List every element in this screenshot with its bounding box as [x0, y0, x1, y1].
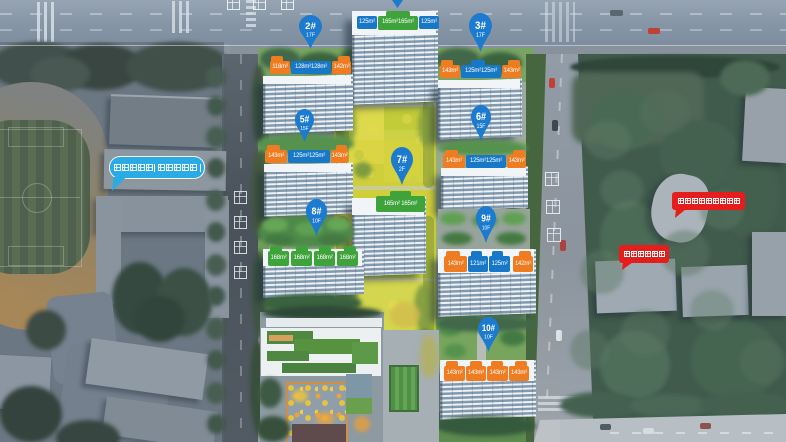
- svg-text:6#: 6#: [476, 111, 486, 123]
- svg-text:10F: 10F: [482, 225, 491, 232]
- svg-text:5#: 5#: [300, 114, 310, 125]
- svg-text:10F: 10F: [484, 334, 493, 340]
- svg-text:2F: 2F: [399, 167, 406, 173]
- svg-text:15F: 15F: [477, 123, 486, 130]
- svg-text:9#: 9#: [481, 213, 491, 225]
- svg-text:8#: 8#: [312, 206, 322, 218]
- svg-text:17F: 17F: [306, 33, 315, 39]
- svg-text:7#: 7#: [397, 154, 408, 166]
- svg-text:10F: 10F: [312, 218, 321, 224]
- svg-text:10#: 10#: [482, 323, 495, 334]
- svg-text:17F: 17F: [476, 33, 486, 39]
- svg-text:3#: 3#: [475, 21, 486, 33]
- svg-text:2#: 2#: [305, 21, 316, 32]
- svg-text:15F: 15F: [300, 126, 308, 132]
